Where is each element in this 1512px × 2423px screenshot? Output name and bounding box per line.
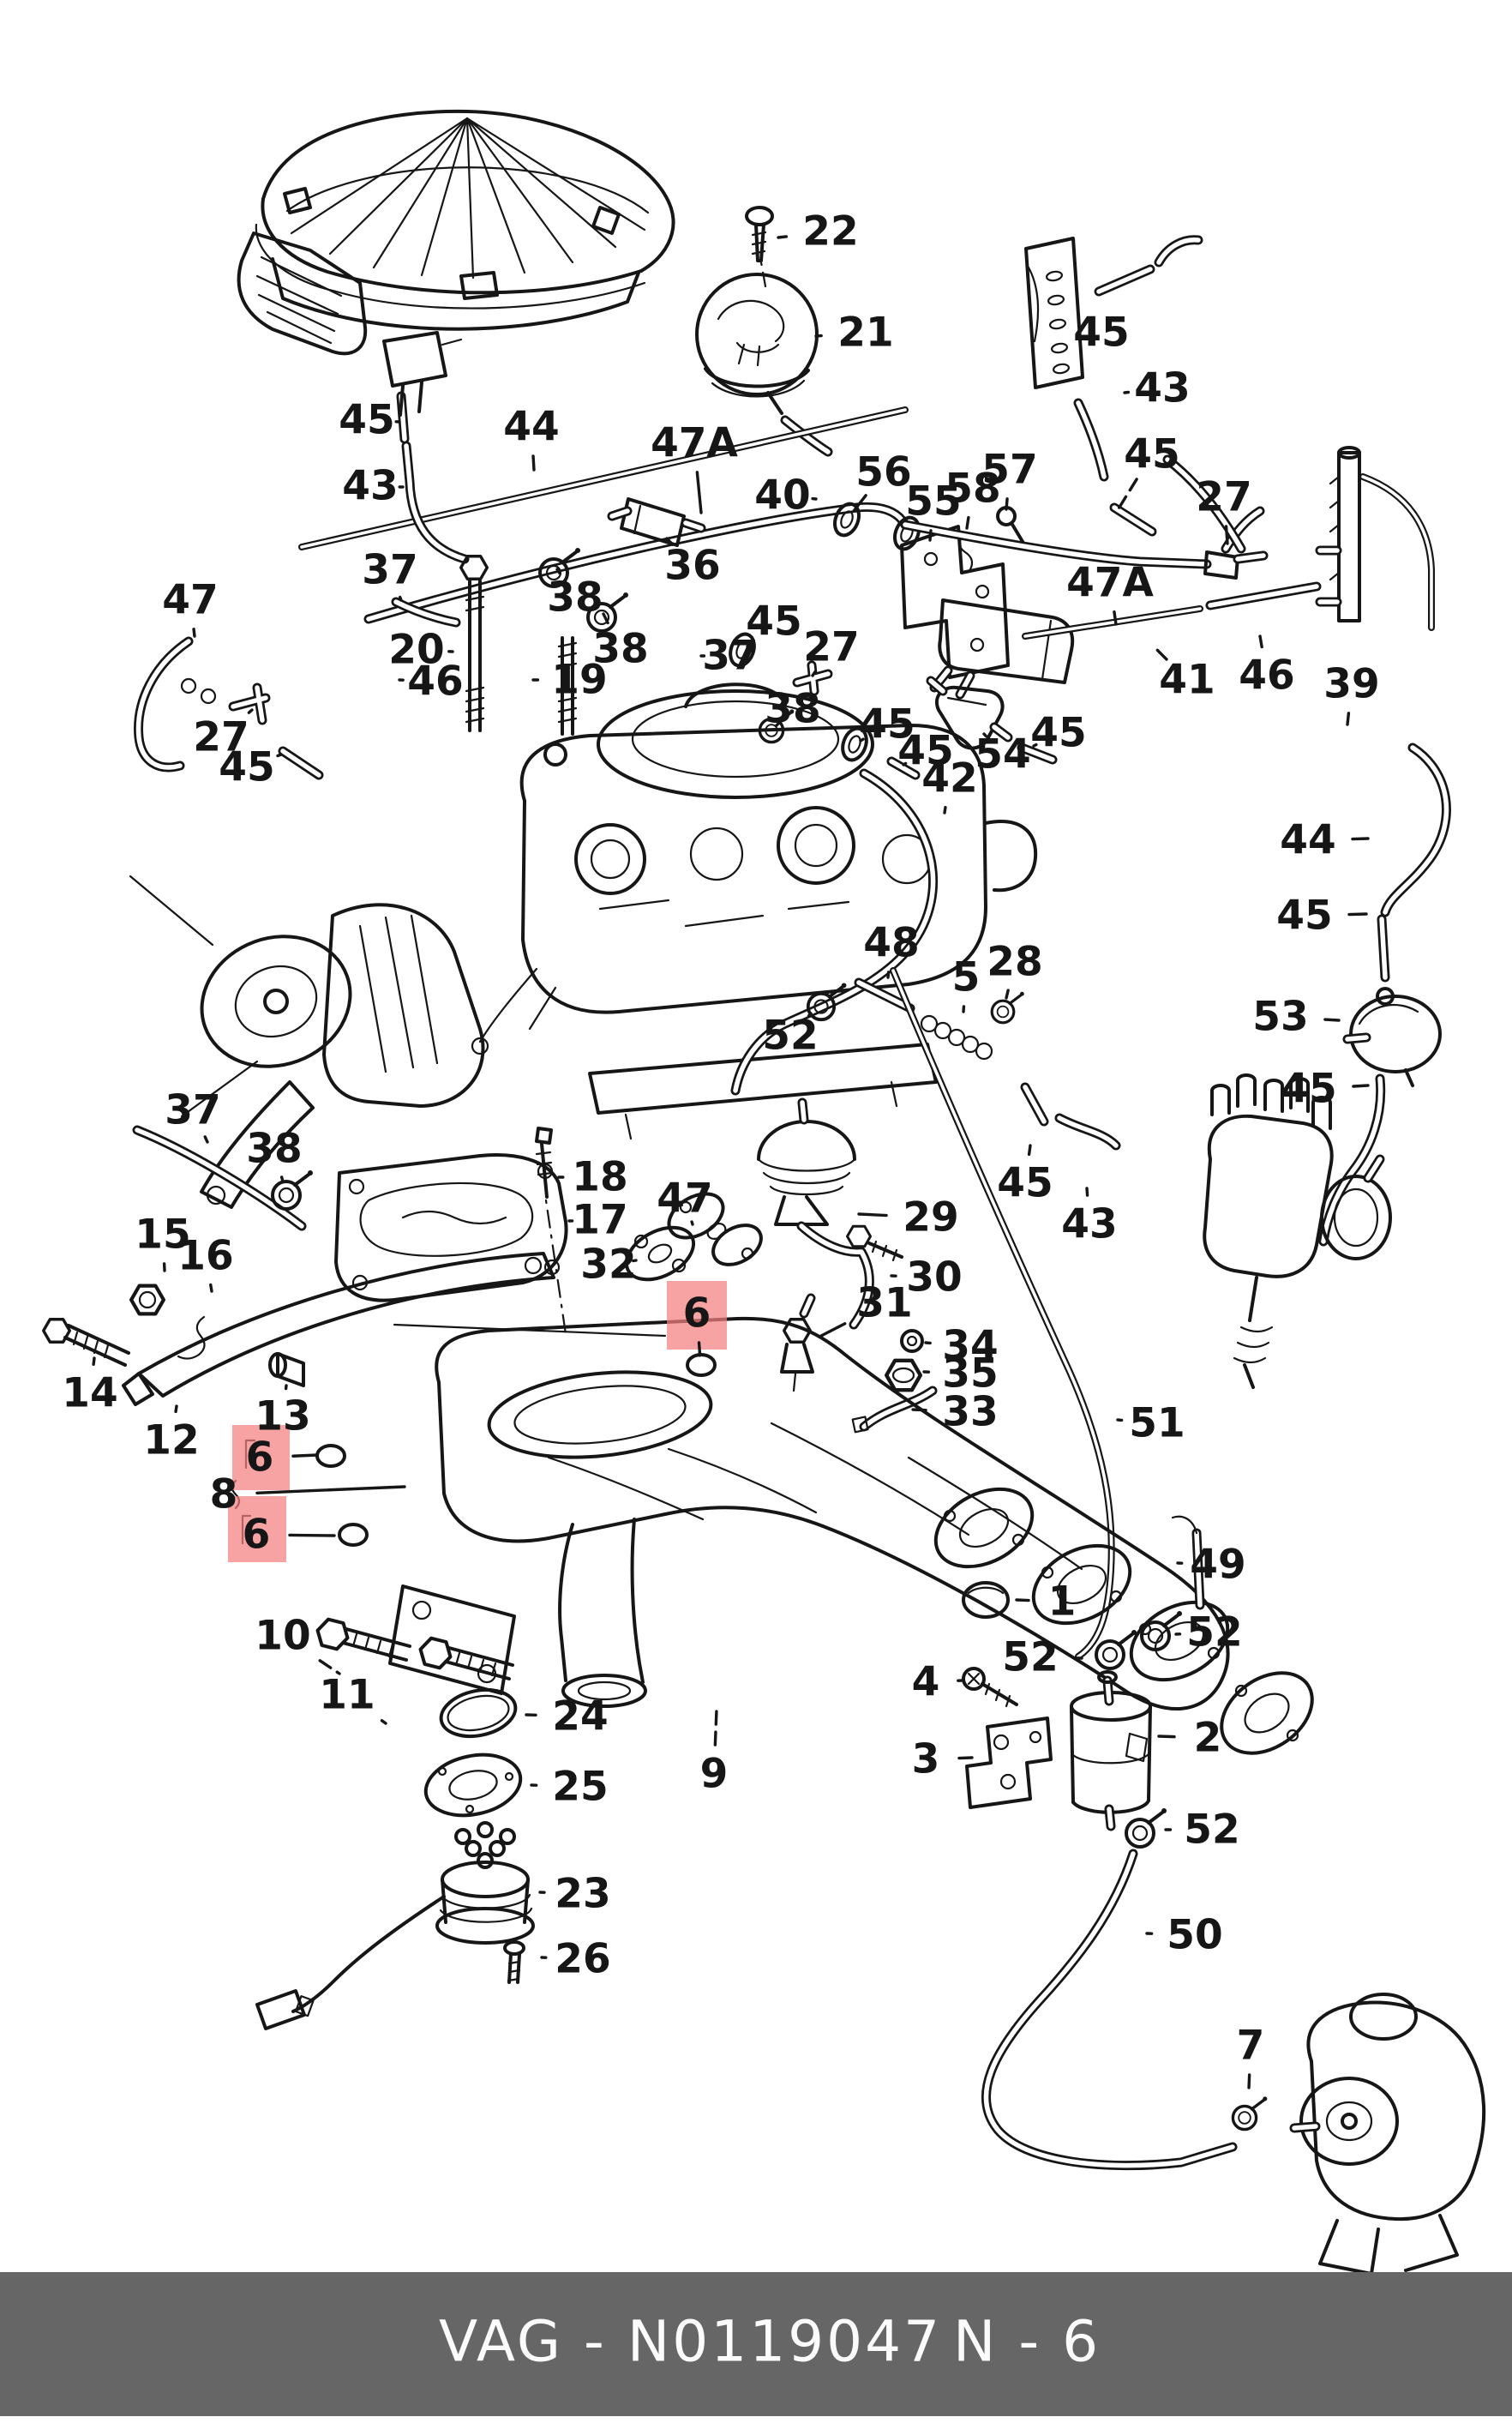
part-callout-43[interactable]: 43 xyxy=(1134,365,1190,412)
part-callout-24[interactable]: 24 xyxy=(552,1693,608,1741)
callout-leader-line xyxy=(1349,914,1366,915)
exploded-parts-diagram: 22214543452747A41463944455345454447A4337… xyxy=(0,0,1512,2423)
part-callout-45[interactable]: 45 xyxy=(1073,310,1129,357)
part-callout-5[interactable]: 5 xyxy=(952,954,981,1001)
part-callout-29[interactable]: 29 xyxy=(903,1194,958,1242)
callout-leader-line xyxy=(888,972,889,977)
callout-leader-line xyxy=(1347,713,1348,724)
part-callout-43[interactable]: 43 xyxy=(1061,1201,1117,1248)
part-callout-8[interactable]: 8 xyxy=(210,1471,238,1518)
part-callout-38[interactable]: 38 xyxy=(765,686,820,733)
callout-leader-line xyxy=(93,1358,94,1364)
part-callout-9[interactable]: 9 xyxy=(700,1751,729,1798)
callout-leader-line xyxy=(945,808,945,813)
part-callout-54[interactable]: 54 xyxy=(975,731,1030,779)
callout-leader-line xyxy=(1260,636,1262,647)
part-callout-1[interactable]: 1 xyxy=(1048,1578,1077,1626)
callout-leader-line xyxy=(715,1710,717,1745)
part-callout-22[interactable]: 22 xyxy=(802,208,858,256)
callout-leader-line xyxy=(1029,1145,1030,1154)
callout-leader-line xyxy=(912,1410,926,1410)
part-callout-47[interactable]: 47 xyxy=(162,577,218,624)
callout-leader-line xyxy=(282,1177,283,1181)
callout-leader-line xyxy=(1353,839,1368,839)
callout-leader-line xyxy=(859,1214,886,1216)
part-callout-32[interactable]: 32 xyxy=(580,1242,636,1289)
page-number: N - 6 xyxy=(953,2308,1101,2374)
part-callout-33[interactable]: 33 xyxy=(942,1389,998,1436)
part-callout-18[interactable]: 18 xyxy=(572,1154,627,1201)
part-callout-47A[interactable]: 47A xyxy=(1066,560,1154,607)
part-callout-45[interactable]: 45 xyxy=(1124,431,1179,478)
callout-leader-line xyxy=(557,569,560,573)
part-callout-37[interactable]: 37 xyxy=(362,547,417,594)
callout-leader-line xyxy=(211,1285,212,1291)
part-callout-49[interactable]: 49 xyxy=(1190,1542,1245,1589)
callout-leader-line xyxy=(1017,1600,1029,1601)
part-callout-11[interactable]: 11 xyxy=(319,1672,375,1719)
part-callout-52[interactable]: 52 xyxy=(1186,1609,1242,1656)
callout-leader-line xyxy=(1087,1188,1088,1195)
part-callout-45[interactable]: 45 xyxy=(997,1160,1053,1207)
callout-leader-line xyxy=(821,1324,845,1336)
part-callout-31[interactable]: 31 xyxy=(856,1280,912,1327)
callout-leader-line xyxy=(278,755,281,756)
catalog-number: VAG - N0119047 xyxy=(439,2308,942,2374)
part-callout-53[interactable]: 53 xyxy=(1252,994,1308,1041)
part-callout-45[interactable]: 45 xyxy=(1030,710,1086,757)
part-callout-37[interactable]: 37 xyxy=(165,1087,220,1134)
diagram-artwork xyxy=(44,111,1484,2274)
part-callout-47[interactable]: 47 xyxy=(657,1175,712,1223)
part-callout-23[interactable]: 23 xyxy=(555,1871,610,1918)
part-callout-12[interactable]: 12 xyxy=(143,1417,199,1464)
part-callout-45[interactable]: 45 xyxy=(339,397,394,444)
part-callout-14[interactable]: 14 xyxy=(62,1370,117,1417)
part-callout-51[interactable]: 51 xyxy=(1129,1400,1185,1447)
callout-leader-line xyxy=(205,1137,207,1142)
part-callout-39[interactable]: 39 xyxy=(1323,661,1379,708)
part-callout-44[interactable]: 44 xyxy=(503,404,559,451)
part-callout-47A[interactable]: 47A xyxy=(651,420,738,467)
part-callout-27[interactable]: 27 xyxy=(803,624,859,671)
callout-leader-line xyxy=(1353,1085,1368,1086)
callout-leader-line xyxy=(1159,1736,1174,1737)
part-callout-52[interactable]: 52 xyxy=(1184,1807,1239,1854)
part-callout-27[interactable]: 27 xyxy=(1196,474,1251,521)
part-callout-10[interactable]: 10 xyxy=(255,1613,310,1660)
callout-leader-line xyxy=(1227,526,1227,544)
part-callout-36[interactable]: 36 xyxy=(664,543,720,590)
part-callout-6-highlighted[interactable]: 6 xyxy=(683,1290,711,1338)
callout-leader-line xyxy=(959,1758,972,1759)
callout-leader-line xyxy=(400,598,401,601)
part-callout-43[interactable]: 43 xyxy=(342,463,398,510)
callout-leader-line xyxy=(194,629,195,636)
callout-leader-line xyxy=(176,1406,177,1411)
part-callout-45[interactable]: 45 xyxy=(1276,893,1332,940)
part-callout-41[interactable]: 41 xyxy=(1159,657,1215,704)
part-callout-28[interactable]: 28 xyxy=(987,939,1042,986)
part-callout-6-highlighted[interactable]: 6 xyxy=(246,1434,274,1482)
part-callout-37[interactable]: 37 xyxy=(702,633,758,680)
part-callout-45[interactable]: 45 xyxy=(219,744,274,791)
callout-leader-line xyxy=(603,614,608,622)
callout-leader-line xyxy=(1114,612,1116,624)
part-callout-50[interactable]: 50 xyxy=(1167,1912,1222,1959)
callout-leader-line xyxy=(1249,2075,1250,2089)
parts-catalog-page: 22214543452747A41463944455345454447A4337… xyxy=(0,0,1512,2423)
part-callout-4[interactable]: 4 xyxy=(912,1659,940,1706)
part-callout-16[interactable]: 16 xyxy=(177,1233,233,1280)
callout-leader-line xyxy=(1006,990,1008,998)
callout-leader-line xyxy=(1116,479,1137,513)
part-callout-46[interactable]: 46 xyxy=(1239,652,1294,700)
part-callout-21[interactable]: 21 xyxy=(837,310,893,357)
part-callout-52[interactable]: 52 xyxy=(1002,1634,1058,1681)
part-callout-44[interactable]: 44 xyxy=(1280,817,1335,864)
part-callout-45[interactable]: 45 xyxy=(1281,1066,1336,1113)
part-callout-3[interactable]: 3 xyxy=(912,1736,940,1783)
part-callout-25[interactable]: 25 xyxy=(552,1764,608,1811)
part-callout-30[interactable]: 30 xyxy=(906,1254,962,1302)
callout-leader-line xyxy=(930,531,931,540)
callout-layer: 22214543452747A41463944455345454447A4337… xyxy=(62,208,1379,2089)
part-callout-40[interactable]: 40 xyxy=(754,472,810,520)
callout-leader-line xyxy=(1006,499,1007,509)
callout-leader-line xyxy=(293,1455,317,1456)
part-callout-2[interactable]: 2 xyxy=(1194,1715,1222,1762)
part-callout-13[interactable]: 13 xyxy=(255,1393,310,1440)
callout-leader-line xyxy=(1325,1019,1339,1020)
footer-bar: VAG - N0119047 N - 6 xyxy=(0,2272,1512,2416)
callout-leader-line xyxy=(290,1535,334,1536)
part-callout-42[interactable]: 42 xyxy=(921,755,977,803)
callout-leader-line xyxy=(249,710,252,712)
callout-leader-line xyxy=(778,237,786,237)
part-callout-6-highlighted[interactable]: 6 xyxy=(243,1512,271,1559)
part-callout-52[interactable]: 52 xyxy=(762,1013,818,1060)
part-callout-57[interactable]: 57 xyxy=(981,447,1037,494)
part-callout-26[interactable]: 26 xyxy=(555,1936,610,1983)
callout-leader-line xyxy=(967,518,969,528)
callout-leader-line xyxy=(382,1721,387,1723)
part-callout-56[interactable]: 56 xyxy=(855,449,911,496)
part-callout-17[interactable]: 17 xyxy=(572,1197,627,1244)
callout-leader-line xyxy=(699,1343,700,1360)
part-callout-38[interactable]: 38 xyxy=(246,1126,302,1173)
part-callout-7[interactable]: 7 xyxy=(1237,2023,1265,2070)
part-callout-48[interactable]: 48 xyxy=(863,920,919,967)
callout-leader-line xyxy=(697,472,701,513)
part-callout-38[interactable]: 38 xyxy=(547,574,603,622)
part-callout-46[interactable]: 46 xyxy=(407,658,463,706)
callout-leader-line xyxy=(533,456,534,470)
part-callout-19[interactable]: 19 xyxy=(551,657,607,704)
callout-leader-line xyxy=(1125,393,1128,394)
